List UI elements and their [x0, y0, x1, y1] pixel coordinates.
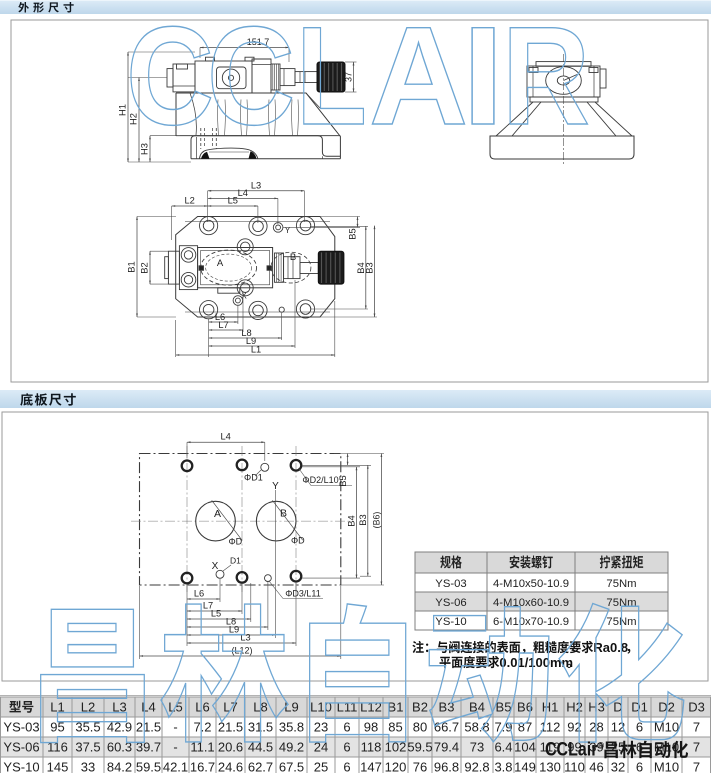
svg-text:A: A	[369, 0, 468, 154]
svg-text:YS-10: YS-10	[3, 760, 39, 773]
svg-text:6.4: 6.4	[494, 740, 512, 755]
svg-text:ΦD2/L10: ΦD2/L10	[302, 475, 338, 485]
svg-text:110: 110	[564, 760, 585, 773]
svg-text:L3: L3	[251, 180, 261, 190]
svg-text:L12: L12	[360, 700, 382, 715]
svg-text:130: 130	[539, 760, 561, 773]
svg-text:L2: L2	[185, 196, 195, 206]
svg-text:H2: H2	[566, 700, 583, 715]
svg-text:59.5: 59.5	[136, 760, 161, 773]
svg-text:7: 7	[693, 740, 700, 755]
svg-text:49.2: 49.2	[279, 740, 304, 755]
svg-text:24.6: 24.6	[218, 760, 243, 773]
svg-text:B4: B4	[347, 515, 357, 526]
svg-text:98: 98	[364, 720, 378, 735]
svg-text:118: 118	[361, 740, 382, 755]
svg-text:L6: L6	[194, 589, 204, 599]
svg-text:L6: L6	[195, 700, 209, 715]
svg-text:(B6): (B6)	[372, 512, 382, 529]
svg-text:145: 145	[47, 760, 69, 773]
svg-text:ΦD3/L11: ΦD3/L11	[285, 589, 321, 599]
svg-text:CCLair: CCLair	[545, 738, 597, 760]
svg-text:B3: B3	[365, 262, 375, 273]
svg-text:73: 73	[470, 740, 484, 755]
svg-text:42.1: 42.1	[163, 760, 188, 773]
svg-text:-: -	[173, 720, 177, 735]
svg-text:L7: L7	[218, 320, 228, 330]
svg-text:A: A	[214, 508, 221, 520]
svg-text:B2: B2	[412, 700, 428, 715]
svg-text:104: 104	[514, 740, 536, 755]
svg-text:16.7: 16.7	[190, 760, 215, 773]
svg-text:YS-03: YS-03	[435, 578, 466, 590]
svg-text:R: R	[502, 0, 590, 154]
svg-text:B5: B5	[338, 475, 348, 486]
svg-text:4-M10x50-10.9: 4-M10x50-10.9	[493, 578, 569, 590]
svg-text:75Nm: 75Nm	[606, 578, 636, 590]
svg-text:21.5: 21.5	[136, 720, 161, 735]
svg-text:C: C	[126, 0, 214, 154]
svg-text:B: B	[280, 508, 287, 520]
svg-text:84.2: 84.2	[107, 760, 132, 773]
svg-text:59.5: 59.5	[407, 740, 432, 755]
svg-text:YS-03: YS-03	[3, 720, 39, 735]
svg-text:7.2: 7.2	[193, 720, 211, 735]
svg-text:92.8: 92.8	[464, 760, 489, 773]
svg-text:D3: D3	[688, 700, 705, 715]
svg-text:YS-06: YS-06	[435, 597, 466, 609]
svg-text:YS-10: YS-10	[435, 616, 466, 628]
svg-text:87: 87	[518, 720, 532, 735]
svg-text:ΦD1: ΦD1	[244, 473, 263, 483]
svg-text:L5: L5	[228, 196, 238, 206]
svg-text:B5: B5	[348, 228, 358, 239]
svg-text:B5: B5	[496, 700, 512, 715]
svg-text:20.6: 20.6	[218, 740, 243, 755]
svg-text:ΦD: ΦD	[229, 537, 243, 547]
svg-text:L4: L4	[141, 700, 155, 715]
svg-text:ΦD: ΦD	[291, 536, 305, 546]
svg-text:-: -	[173, 740, 177, 755]
svg-text:B3: B3	[439, 700, 455, 715]
svg-text:C: C	[207, 0, 295, 154]
svg-text:B3: B3	[358, 514, 368, 525]
svg-text:33: 33	[81, 760, 95, 773]
svg-text:6: 6	[343, 720, 350, 735]
svg-text:46: 46	[589, 760, 603, 773]
svg-text:L11: L11	[337, 700, 358, 715]
svg-text:H1: H1	[542, 700, 559, 715]
svg-text:120: 120	[385, 760, 407, 773]
svg-text:96.8: 96.8	[434, 760, 459, 773]
svg-text:Ra0.8: Ra0.8	[593, 640, 628, 655]
svg-text:X: X	[212, 561, 219, 572]
svg-text:B2: B2	[140, 262, 150, 273]
svg-text:I: I	[462, 0, 504, 154]
svg-text:32: 32	[611, 760, 625, 773]
svg-text:76: 76	[413, 760, 427, 773]
svg-text:B: B	[290, 252, 296, 263]
svg-text:D1: D1	[631, 700, 648, 715]
svg-text:67.5: 67.5	[279, 760, 304, 773]
svg-text:®: ®	[598, 741, 605, 751]
svg-text:3.8: 3.8	[494, 760, 512, 773]
svg-text:62.7: 62.7	[248, 760, 273, 773]
svg-text:79.4: 79.4	[434, 740, 459, 755]
svg-text:6: 6	[343, 740, 350, 755]
svg-text:7: 7	[693, 720, 700, 735]
svg-text:L1: L1	[251, 345, 261, 355]
svg-text:6: 6	[343, 760, 350, 773]
svg-text:M10: M10	[654, 760, 679, 773]
svg-text:A: A	[217, 258, 224, 269]
svg-text:112: 112	[540, 720, 561, 735]
svg-text:147: 147	[360, 760, 382, 773]
svg-text:149: 149	[514, 760, 536, 773]
svg-text:L4: L4	[238, 188, 248, 198]
svg-text:B1: B1	[388, 700, 404, 715]
svg-text:80: 80	[413, 720, 427, 735]
svg-text:37.5: 37.5	[75, 740, 100, 755]
svg-text:L5: L5	[211, 609, 221, 619]
svg-text:85: 85	[388, 720, 402, 735]
svg-text:23: 23	[314, 720, 328, 735]
svg-text:35.8: 35.8	[279, 720, 304, 735]
svg-text:7: 7	[693, 760, 700, 773]
svg-text:25: 25	[314, 760, 328, 773]
svg-text:L10: L10	[310, 700, 332, 715]
svg-text:YS-06: YS-06	[3, 740, 39, 755]
svg-text:D1: D1	[230, 556, 241, 566]
svg-text:L: L	[296, 0, 367, 154]
svg-text:B1: B1	[127, 261, 137, 272]
svg-text:6: 6	[636, 760, 643, 773]
svg-text:L4: L4	[221, 432, 231, 442]
svg-text:L9: L9	[229, 625, 239, 635]
